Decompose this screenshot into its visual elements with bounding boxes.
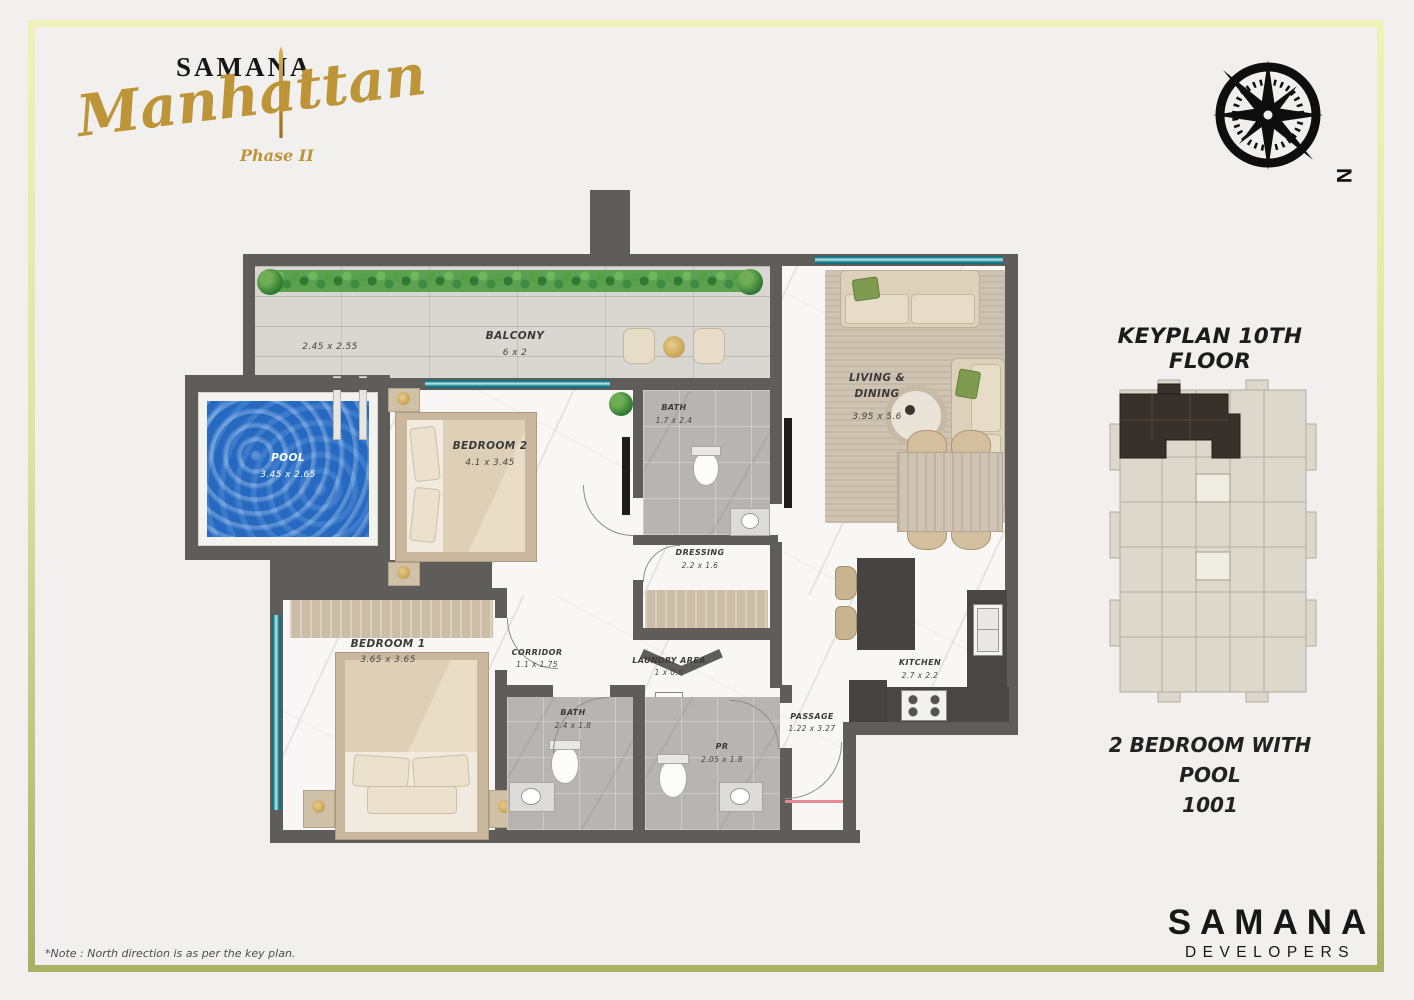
bedroom1-label: BEDROOM 1 — [351, 638, 426, 650]
pillow — [412, 754, 470, 790]
toilet — [693, 452, 719, 486]
bath1-label: BATH — [560, 708, 585, 717]
balcony-dim: 6 x 2 — [503, 348, 528, 358]
brand-phase: Phase II — [240, 146, 314, 165]
bedroom2-dim: 4.1 x 3.45 — [465, 458, 514, 468]
wall — [633, 685, 645, 843]
bedroom1-wardrobe — [290, 600, 493, 638]
balcony-table — [663, 336, 685, 358]
pillow — [409, 426, 441, 482]
stove — [901, 690, 947, 721]
unit-number: 1001 — [1075, 790, 1345, 820]
pool-label: POOL — [271, 452, 305, 464]
dining-table — [897, 452, 1003, 532]
pillow — [367, 786, 457, 814]
duvet — [345, 660, 477, 752]
lamp — [397, 566, 410, 579]
plant — [609, 392, 633, 416]
toilet-tank — [657, 754, 689, 764]
wall — [495, 588, 507, 618]
passage-label: PASSAGE — [790, 712, 834, 721]
toilet — [659, 760, 687, 798]
balcony-plant — [257, 269, 283, 295]
laundry-dim: 1 x 0.8 — [655, 668, 684, 677]
balcony-chair — [693, 328, 725, 364]
wall — [770, 542, 782, 688]
living-label-2: DINING — [854, 388, 899, 400]
bath2-label: BATH — [661, 403, 686, 412]
dressing-wardrobe — [645, 590, 768, 628]
wall — [770, 254, 782, 504]
north-label: N — [1332, 168, 1355, 183]
kitchen-label: KITCHEN — [899, 658, 941, 667]
kitchen-island — [857, 558, 915, 650]
wall — [270, 588, 507, 600]
corridor-label: CORRIDOR — [512, 648, 563, 657]
lamp — [397, 392, 410, 405]
basin — [730, 788, 750, 805]
wall — [633, 580, 643, 635]
pool-dim: 3.45 x 2.65 — [260, 470, 316, 480]
kitchen-sink — [973, 604, 1003, 656]
stool — [835, 566, 857, 600]
stool — [835, 606, 857, 640]
developer-subtitle: DEVELOPERS — [1152, 944, 1382, 962]
pr-label: PR — [716, 742, 729, 751]
corridor-dim: 1.1 x 1.75 — [516, 660, 558, 669]
wall — [495, 685, 553, 697]
passage-dim: 1.22 x 3.27 — [788, 724, 835, 733]
coffee-table-decor — [905, 405, 915, 415]
entry-marker — [785, 800, 843, 803]
dressing-label: DRESSING — [676, 548, 725, 557]
unit-type: 2 BEDROOM WITH POOL — [1075, 730, 1345, 790]
keyplan-image — [1100, 362, 1325, 720]
living-dim: 3.95 x 5.6 — [852, 412, 901, 422]
wall — [633, 535, 778, 545]
balcony-label: BALCONY — [486, 330, 545, 342]
basin — [521, 788, 541, 805]
wall — [849, 722, 1018, 735]
developer-name: SAMANA — [1152, 903, 1382, 943]
balcony-plant — [737, 269, 763, 295]
pool-water — [207, 401, 369, 537]
floorplan-page: SAMANA Manhattan Phase II — [0, 0, 1414, 1000]
dressing-dim: 2.2 x 1.6 — [682, 561, 719, 570]
developer-logo: SAMANA DEVELOPERS — [1152, 903, 1382, 962]
compass-rose: N — [1205, 52, 1355, 192]
lamp — [312, 800, 325, 813]
bedroom2-label: BEDROOM 2 — [453, 440, 528, 452]
green-pillow — [852, 276, 881, 301]
laundry-label: LAUNDRY AREA — [632, 656, 706, 665]
basin — [741, 513, 759, 529]
unit-title: 2 BEDROOM WITH POOL 1001 — [1075, 730, 1345, 820]
bath1-dim: 2.4 x 1.8 — [555, 721, 592, 730]
pillow — [352, 754, 410, 790]
balcony-hedge — [265, 270, 760, 292]
balcony-chair — [623, 328, 655, 364]
wall — [243, 254, 255, 390]
sofa-cushion — [911, 294, 975, 324]
wall — [633, 628, 778, 640]
bedroom2-window-glass — [425, 380, 610, 388]
bedroom1-window-glass — [272, 615, 281, 810]
north-note: *Note : North direction is as per the ke… — [45, 947, 295, 960]
compass-icon: N — [1205, 52, 1355, 192]
wall — [780, 685, 792, 703]
living-label-1: LIVING & — [849, 372, 905, 384]
toilet-tank — [691, 446, 721, 456]
kitchen-dim: 2.7 x 2.2 — [902, 671, 939, 680]
kitchen-column — [849, 680, 887, 722]
balcony-side-dim: 2.45 x 2.55 — [302, 342, 358, 352]
living-window-glass — [815, 256, 1003, 264]
bath2-dim: 1.7 x 2.4 — [656, 416, 693, 425]
floor-plan: 2.45 x 2.55 BALCONY 6 x 2 POOL 3.45 x 2.… — [185, 190, 1020, 870]
wall — [843, 722, 856, 843]
tv — [784, 418, 792, 508]
pr-dim: 2.05 x 1.8 — [701, 755, 743, 764]
bedroom1-dim: 3.65 x 3.65 — [360, 655, 416, 665]
wall — [633, 390, 643, 498]
